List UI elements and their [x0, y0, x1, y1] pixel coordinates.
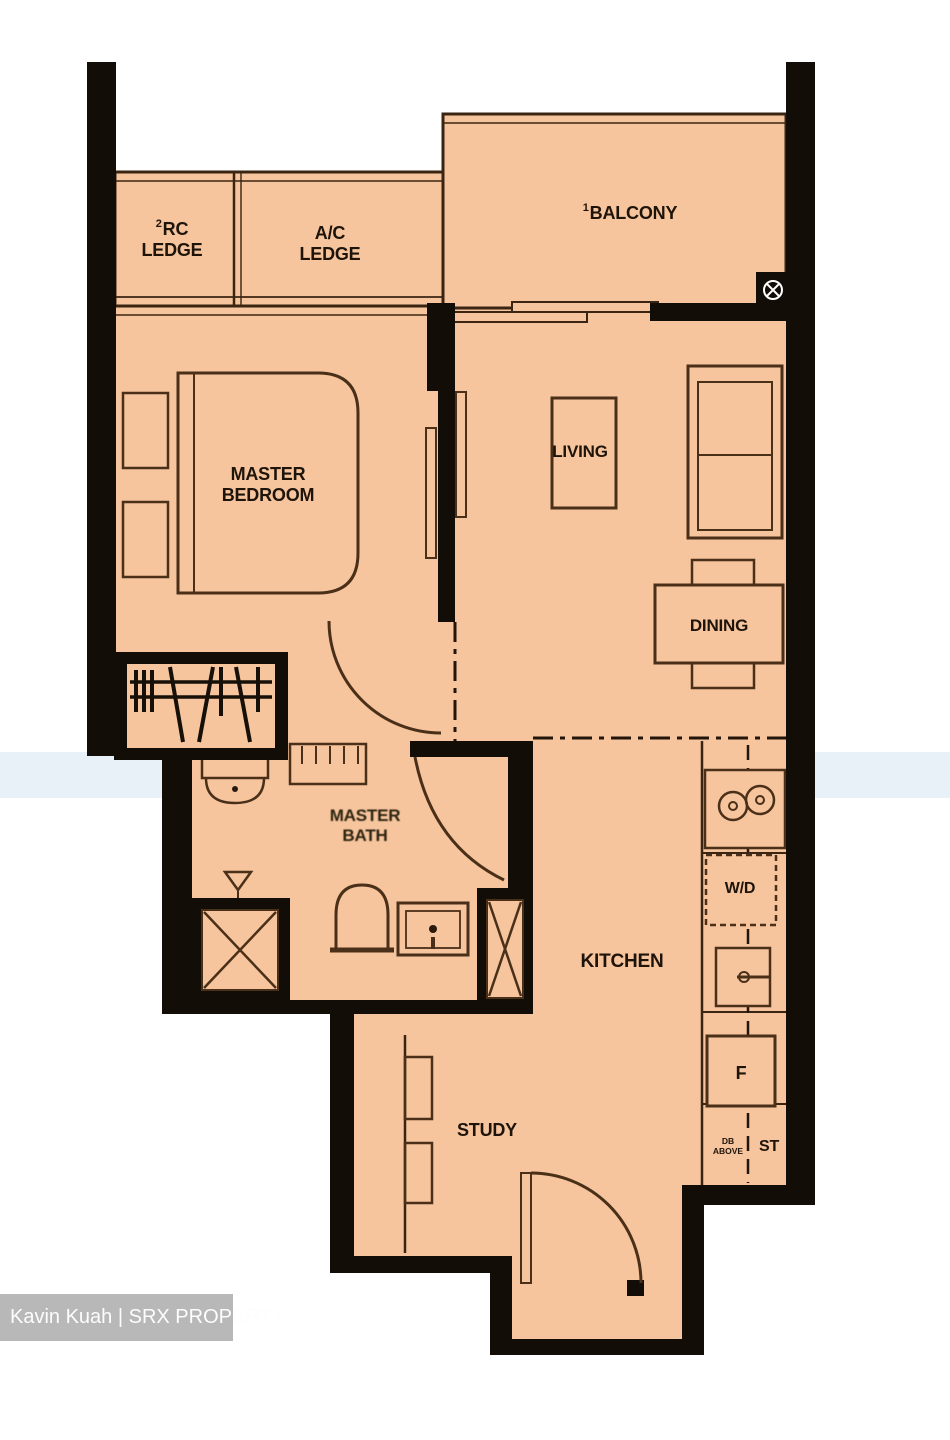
wall-vestibule-bottom — [490, 1339, 704, 1355]
wall-right — [786, 62, 815, 1205]
hob-counter — [705, 770, 785, 848]
label-rc-ledge: 2RC LEDGE — [130, 219, 214, 261]
label-balcony: 1BALCONY — [555, 203, 705, 224]
wall-study-bottom — [330, 1256, 512, 1273]
wall-left — [87, 62, 116, 756]
wall-vestibule-right — [682, 1190, 704, 1355]
label-master-bath: MASTER BATH — [323, 806, 407, 845]
label-master-bedroom: MASTER BEDROOM — [200, 464, 336, 506]
wall-bath-left — [162, 741, 192, 1014]
label-living: LIVING — [530, 442, 630, 462]
balcony-slider-panel-2 — [437, 312, 587, 322]
wall-kitchen-left — [508, 741, 533, 891]
label-dining: DINING — [669, 616, 769, 636]
wall-study-left — [330, 1010, 354, 1273]
label-study: STUDY — [437, 1120, 537, 1141]
agent-watermark: Kavin Kuah | SRX PROPERTY — [0, 1294, 233, 1341]
entry-vestibule-floor — [512, 1256, 682, 1339]
slide-panel-1 — [456, 392, 466, 517]
wall-divider-top — [427, 303, 455, 391]
sink-faucet-dot — [429, 925, 437, 933]
entrance-door-leaf — [521, 1173, 531, 1283]
study-lower-floor — [330, 1185, 682, 1256]
label-ac-ledge: A/C LEDGE — [288, 223, 372, 265]
balcony-slider-panel-1 — [512, 302, 658, 312]
wall-divider-mid — [438, 391, 455, 622]
slide-panel-2 — [426, 428, 436, 558]
label-kitchen: KITCHEN — [552, 951, 692, 973]
balcony-footnote: 1 — [583, 202, 589, 214]
basin-drain — [232, 786, 238, 792]
label-washer-dryer: W/D — [708, 880, 772, 899]
label-db-above: DB ABOVE — [710, 1137, 746, 1157]
rc-ledge-footnote: 2 — [156, 218, 162, 230]
label-store: ST — [752, 1138, 786, 1157]
floor-plan-drawing — [0, 0, 950, 1440]
floor-plan-page: 2RC LEDGE A/C LEDGE 1BALCONY MASTER BEDR… — [0, 0, 950, 1440]
label-fridge: F — [709, 1063, 773, 1084]
